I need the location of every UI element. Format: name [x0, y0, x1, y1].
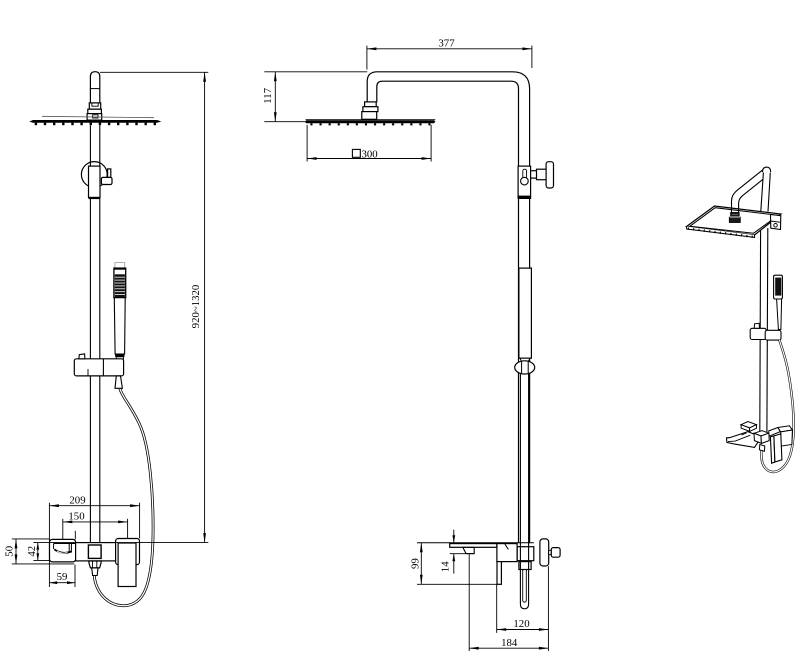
svg-text:14: 14	[440, 561, 452, 572]
svg-text:50: 50	[4, 546, 16, 557]
svg-text:377: 377	[438, 37, 455, 49]
svg-text:117: 117	[262, 87, 274, 103]
svg-text:59: 59	[57, 571, 68, 583]
svg-text:300: 300	[362, 148, 378, 160]
svg-text:184: 184	[501, 637, 518, 649]
svg-text:920~1320: 920~1320	[190, 285, 202, 329]
svg-text:42: 42	[26, 546, 38, 557]
svg-text:120: 120	[513, 618, 529, 630]
svg-text:99: 99	[409, 558, 421, 569]
svg-text:150: 150	[68, 511, 84, 523]
svg-text:209: 209	[69, 494, 85, 506]
